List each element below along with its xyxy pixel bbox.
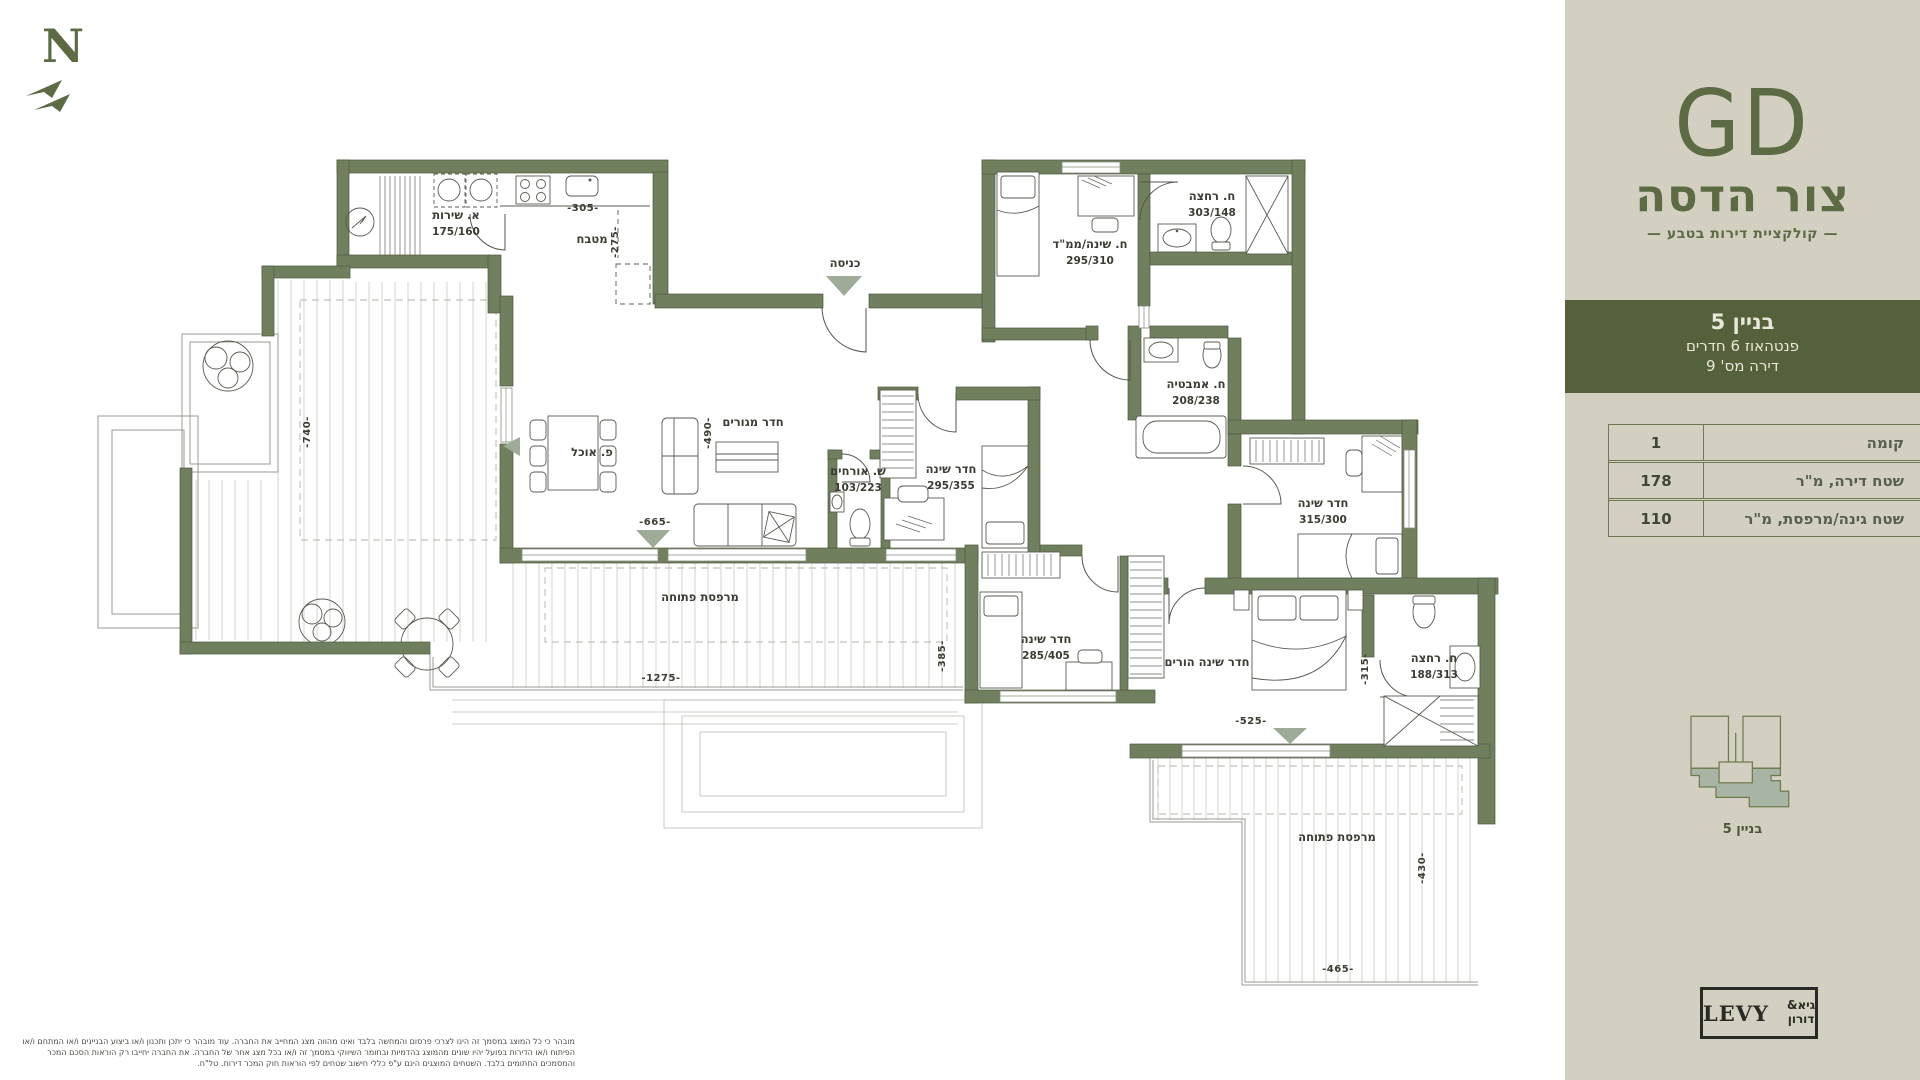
bedroom-285-furniture (980, 552, 1112, 690)
garden-area-label: שטח גינה/מרפסת, מ"ר (1704, 510, 1920, 528)
room-dims: 295/355 (927, 480, 975, 492)
apartment-info-table: 1 קומה 178 שטח דירה, מ"ר 110 שטח גינה/מר… (1608, 424, 1920, 537)
developer-logo: LEVY גיא& דורון (1700, 987, 1818, 1039)
apartment-type: פנטהאוז 6 חדרים (1565, 334, 1920, 355)
table-row: 110 שטח גינה/מרפסת, מ"ר (1609, 501, 1920, 536)
developer-name-latin: LEVY (1703, 1001, 1769, 1026)
developer-name-hebrew: גיא& דורון (1787, 999, 1815, 1027)
room-dims: 175/160 (432, 226, 480, 238)
room-label: מרפסת פתוחה (661, 590, 739, 604)
floor-value: 1 (1609, 425, 1704, 460)
footprint-caption: בניין 5 (1565, 822, 1920, 837)
room-dims: 103/223 (834, 482, 882, 494)
north-arrow-icon: N (26, 19, 84, 112)
project-name: צור הדסה (1565, 170, 1920, 222)
floor-label: קומה (1704, 434, 1920, 452)
kitchen-fixtures (500, 176, 650, 304)
room-dims: 208/238 (1172, 395, 1220, 407)
room-label: פ. אוכל (571, 445, 613, 459)
apartment-area-value: 178 (1609, 463, 1704, 498)
room-label: ח. שינה/ממ"ד (1052, 237, 1127, 251)
dimension-label: -465- (1322, 964, 1354, 975)
tree-icon (203, 341, 345, 645)
garden-area-value: 110 (1609, 501, 1704, 536)
floor-plan: N (0, 0, 1565, 1080)
room-dims: 285/405 (1022, 650, 1070, 662)
table-row: 178 שטח דירה, מ"ר (1609, 463, 1920, 501)
brand-logo: GD צור הדסה — קולקציית דירות בטבע — (1565, 78, 1920, 242)
dimension-label: -305- (567, 203, 599, 214)
room-label: ח. רחצה (1411, 651, 1458, 665)
dimension-label: -525- (1235, 716, 1267, 727)
sidebar: GD צור הדסה — קולקציית דירות בטבע — בניי… (1565, 0, 1920, 1080)
project-tagline: — קולקציית דירות בטבע — (1565, 226, 1920, 242)
dimension-label: -315- (1360, 653, 1371, 685)
table-row: 1 קומה (1609, 425, 1920, 463)
building-banner: בניין 5 פנטהאוז 6 חדרים דירה מס' 9 (1565, 300, 1920, 393)
legal-disclaimer: מובהר כי כל המוצג במסמך זה הינו לצרכי פר… (10, 1036, 575, 1069)
dimension-label: -430- (1417, 852, 1428, 884)
hall-closet (1128, 556, 1164, 678)
room-label: מטבח (576, 232, 607, 246)
room-label: א. שירות (432, 208, 480, 222)
dimension-label: -665- (639, 517, 671, 528)
dimension-label: -385- (937, 640, 948, 672)
room-dims: 295/310 (1066, 255, 1114, 267)
svg-text:N: N (42, 19, 84, 73)
room-dims: 303/148 (1188, 207, 1236, 219)
dimension-label: -740- (302, 416, 313, 448)
building-footprint-diagram: בניין 5 (1565, 710, 1920, 837)
floor-plan-svg: N (0, 0, 1565, 1080)
room-label: חדר מגורים (722, 415, 783, 429)
building-number: בניין 5 (1565, 300, 1920, 334)
room-label: חדר שינה (926, 462, 977, 476)
room-label: כניסה (830, 256, 861, 270)
dimension-label: -275- (610, 226, 621, 258)
room-label: ח. אמבטיה (1166, 377, 1225, 391)
room-dims: 315/300 (1299, 514, 1347, 526)
room-dims: 188/313 (1410, 669, 1458, 681)
dimension-label: -490- (703, 417, 714, 449)
room-label: חדר שינה (1298, 496, 1349, 510)
apartment-number: דירה מס' 9 (1565, 355, 1920, 375)
room-label: חדר שינה (1021, 632, 1072, 646)
dimension-label: -1275- (641, 673, 680, 684)
room-label: ח. רחצה (1189, 189, 1236, 203)
master-bedroom-furniture (1234, 590, 1363, 690)
room-label: ש. אורחים (830, 464, 886, 478)
brand-monogram: GD (1579, 78, 1906, 170)
room-label: מרפסת פתוחה (1298, 830, 1376, 844)
footprint-svg (1668, 710, 1818, 814)
room-label: חדר שינה הורים (1165, 655, 1250, 669)
floorplan-sheet: N (0, 0, 1920, 1080)
apartment-area-label: שטח דירה, מ"ר (1704, 472, 1920, 490)
